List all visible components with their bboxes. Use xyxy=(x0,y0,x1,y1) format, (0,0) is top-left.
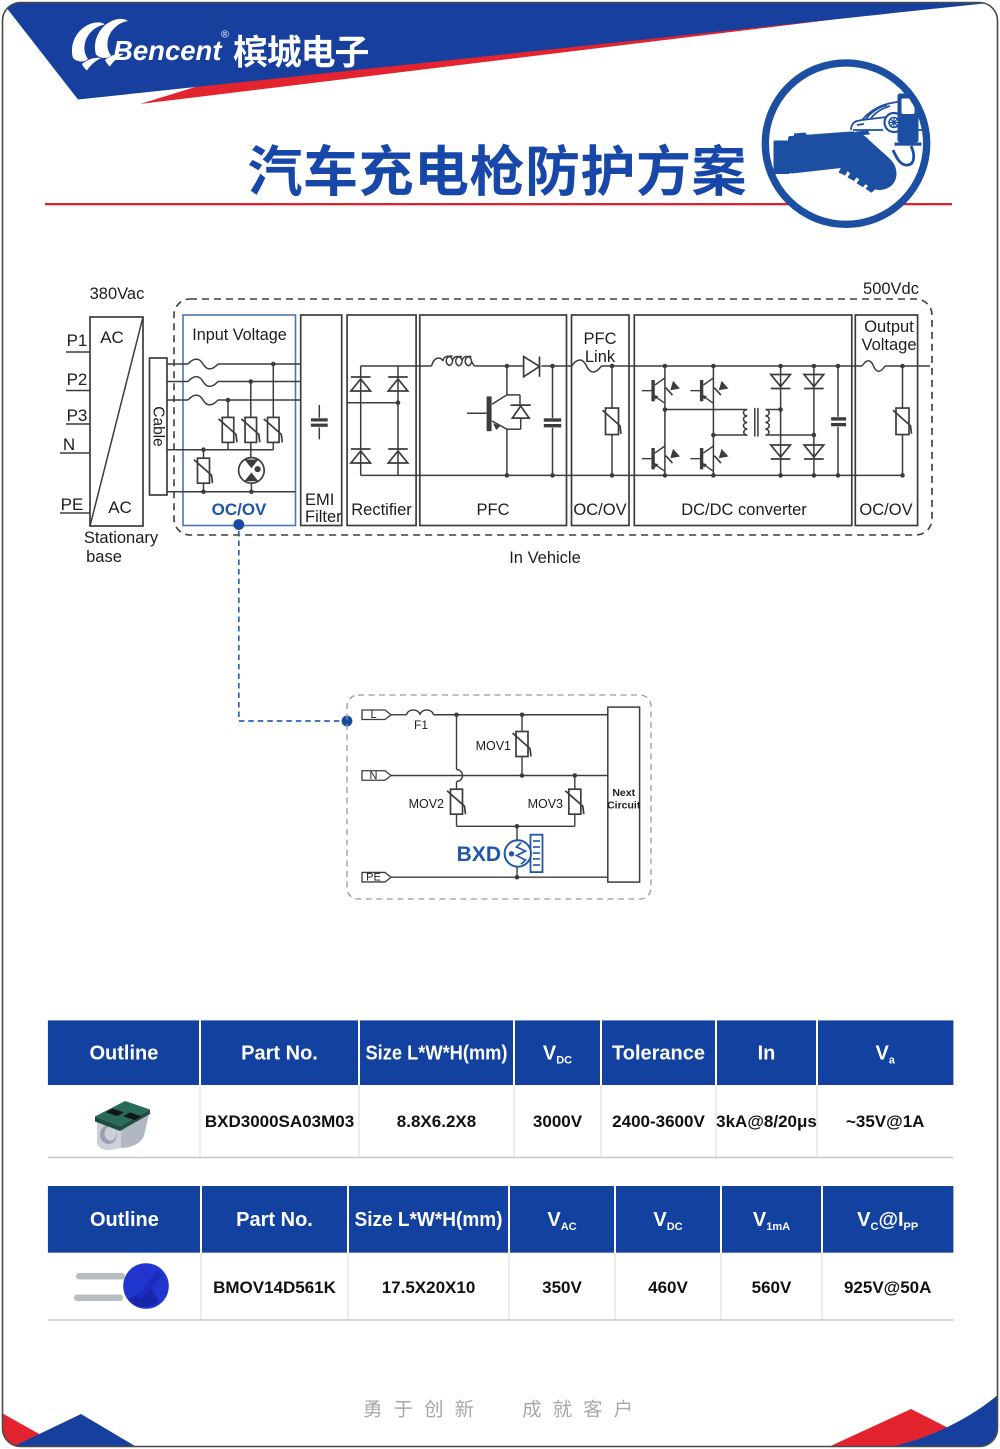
svg-text:17.5X20X10: 17.5X20X10 xyxy=(382,1278,476,1297)
svg-text:500Vdc: 500Vdc xyxy=(863,280,919,298)
svg-text:Bencent: Bencent xyxy=(113,35,223,66)
svg-text:Rectifier: Rectifier xyxy=(351,501,412,519)
svg-text:L: L xyxy=(370,709,376,721)
svg-text:Stationary: Stationary xyxy=(84,529,159,547)
svg-text:Tolerance: Tolerance xyxy=(612,1043,705,1065)
svg-text:PE: PE xyxy=(61,495,84,514)
svg-text:®: ® xyxy=(221,29,229,41)
svg-text:2400-3600V: 2400-3600V xyxy=(612,1112,705,1131)
svg-text:560V: 560V xyxy=(752,1278,792,1297)
svg-text:3kA@8/20μs: 3kA@8/20μs xyxy=(716,1112,817,1131)
svg-text:MOV1: MOV1 xyxy=(476,739,511,753)
svg-text:OC/OV: OC/OV xyxy=(859,501,912,519)
svg-text:380Vac: 380Vac xyxy=(90,285,145,303)
svg-text:AC: AC xyxy=(100,328,124,347)
svg-text:OC/OV: OC/OV xyxy=(212,500,267,519)
svg-text:Size L*W*H(mm): Size L*W*H(mm) xyxy=(355,1209,503,1231)
svg-text:Part No.: Part No. xyxy=(236,1209,313,1231)
svg-text:Filter: Filter xyxy=(305,508,342,526)
svg-text:BMOV14D561K: BMOV14D561K xyxy=(213,1278,337,1297)
svg-text:N: N xyxy=(63,435,75,454)
svg-text:In: In xyxy=(758,1043,776,1065)
svg-text:Next: Next xyxy=(612,787,635,799)
svg-text:Link: Link xyxy=(585,348,616,366)
svg-text:PE: PE xyxy=(366,872,381,884)
svg-text:Circuit: Circuit xyxy=(607,800,641,812)
svg-text:Input Voltage: Input Voltage xyxy=(192,326,287,344)
svg-text:Outline: Outline xyxy=(90,1209,159,1231)
svg-text:In Vehicle: In Vehicle xyxy=(509,549,581,567)
svg-text:base: base xyxy=(86,548,122,566)
svg-text:8.8X6.2X8: 8.8X6.2X8 xyxy=(397,1112,476,1131)
svg-text:460V: 460V xyxy=(648,1278,688,1297)
svg-text:BXD3000SA03M03: BXD3000SA03M03 xyxy=(205,1112,354,1131)
svg-text:P3: P3 xyxy=(67,406,88,425)
svg-text:Voltage: Voltage xyxy=(861,336,916,354)
svg-text:BXD: BXD xyxy=(457,843,501,866)
svg-text:Output: Output xyxy=(864,318,914,336)
svg-text:F1: F1 xyxy=(414,718,428,732)
svg-text:Outline: Outline xyxy=(90,1043,159,1065)
svg-text:P2: P2 xyxy=(67,370,88,389)
svg-text:MOV2: MOV2 xyxy=(409,797,444,811)
svg-text:PFC: PFC xyxy=(584,330,617,348)
svg-text:OC/OV: OC/OV xyxy=(573,501,626,519)
svg-text:~35V@1A: ~35V@1A xyxy=(846,1112,924,1131)
svg-text:PFC: PFC xyxy=(477,501,510,519)
svg-text:MOV3: MOV3 xyxy=(528,797,563,811)
svg-text:3000V: 3000V xyxy=(533,1112,583,1131)
svg-text:EMI: EMI xyxy=(305,491,334,509)
svg-text:Part No.: Part No. xyxy=(241,1043,318,1065)
svg-text:N: N xyxy=(370,770,378,782)
svg-text:Cable: Cable xyxy=(150,406,167,447)
svg-text:925V@50A: 925V@50A xyxy=(844,1278,931,1297)
svg-text:AC: AC xyxy=(108,498,132,517)
svg-text:P1: P1 xyxy=(67,331,88,350)
svg-text:Size L*W*H(mm): Size L*W*H(mm) xyxy=(366,1043,508,1065)
svg-text:DC/DC converter: DC/DC converter xyxy=(681,501,807,519)
svg-text:350V: 350V xyxy=(542,1278,582,1297)
